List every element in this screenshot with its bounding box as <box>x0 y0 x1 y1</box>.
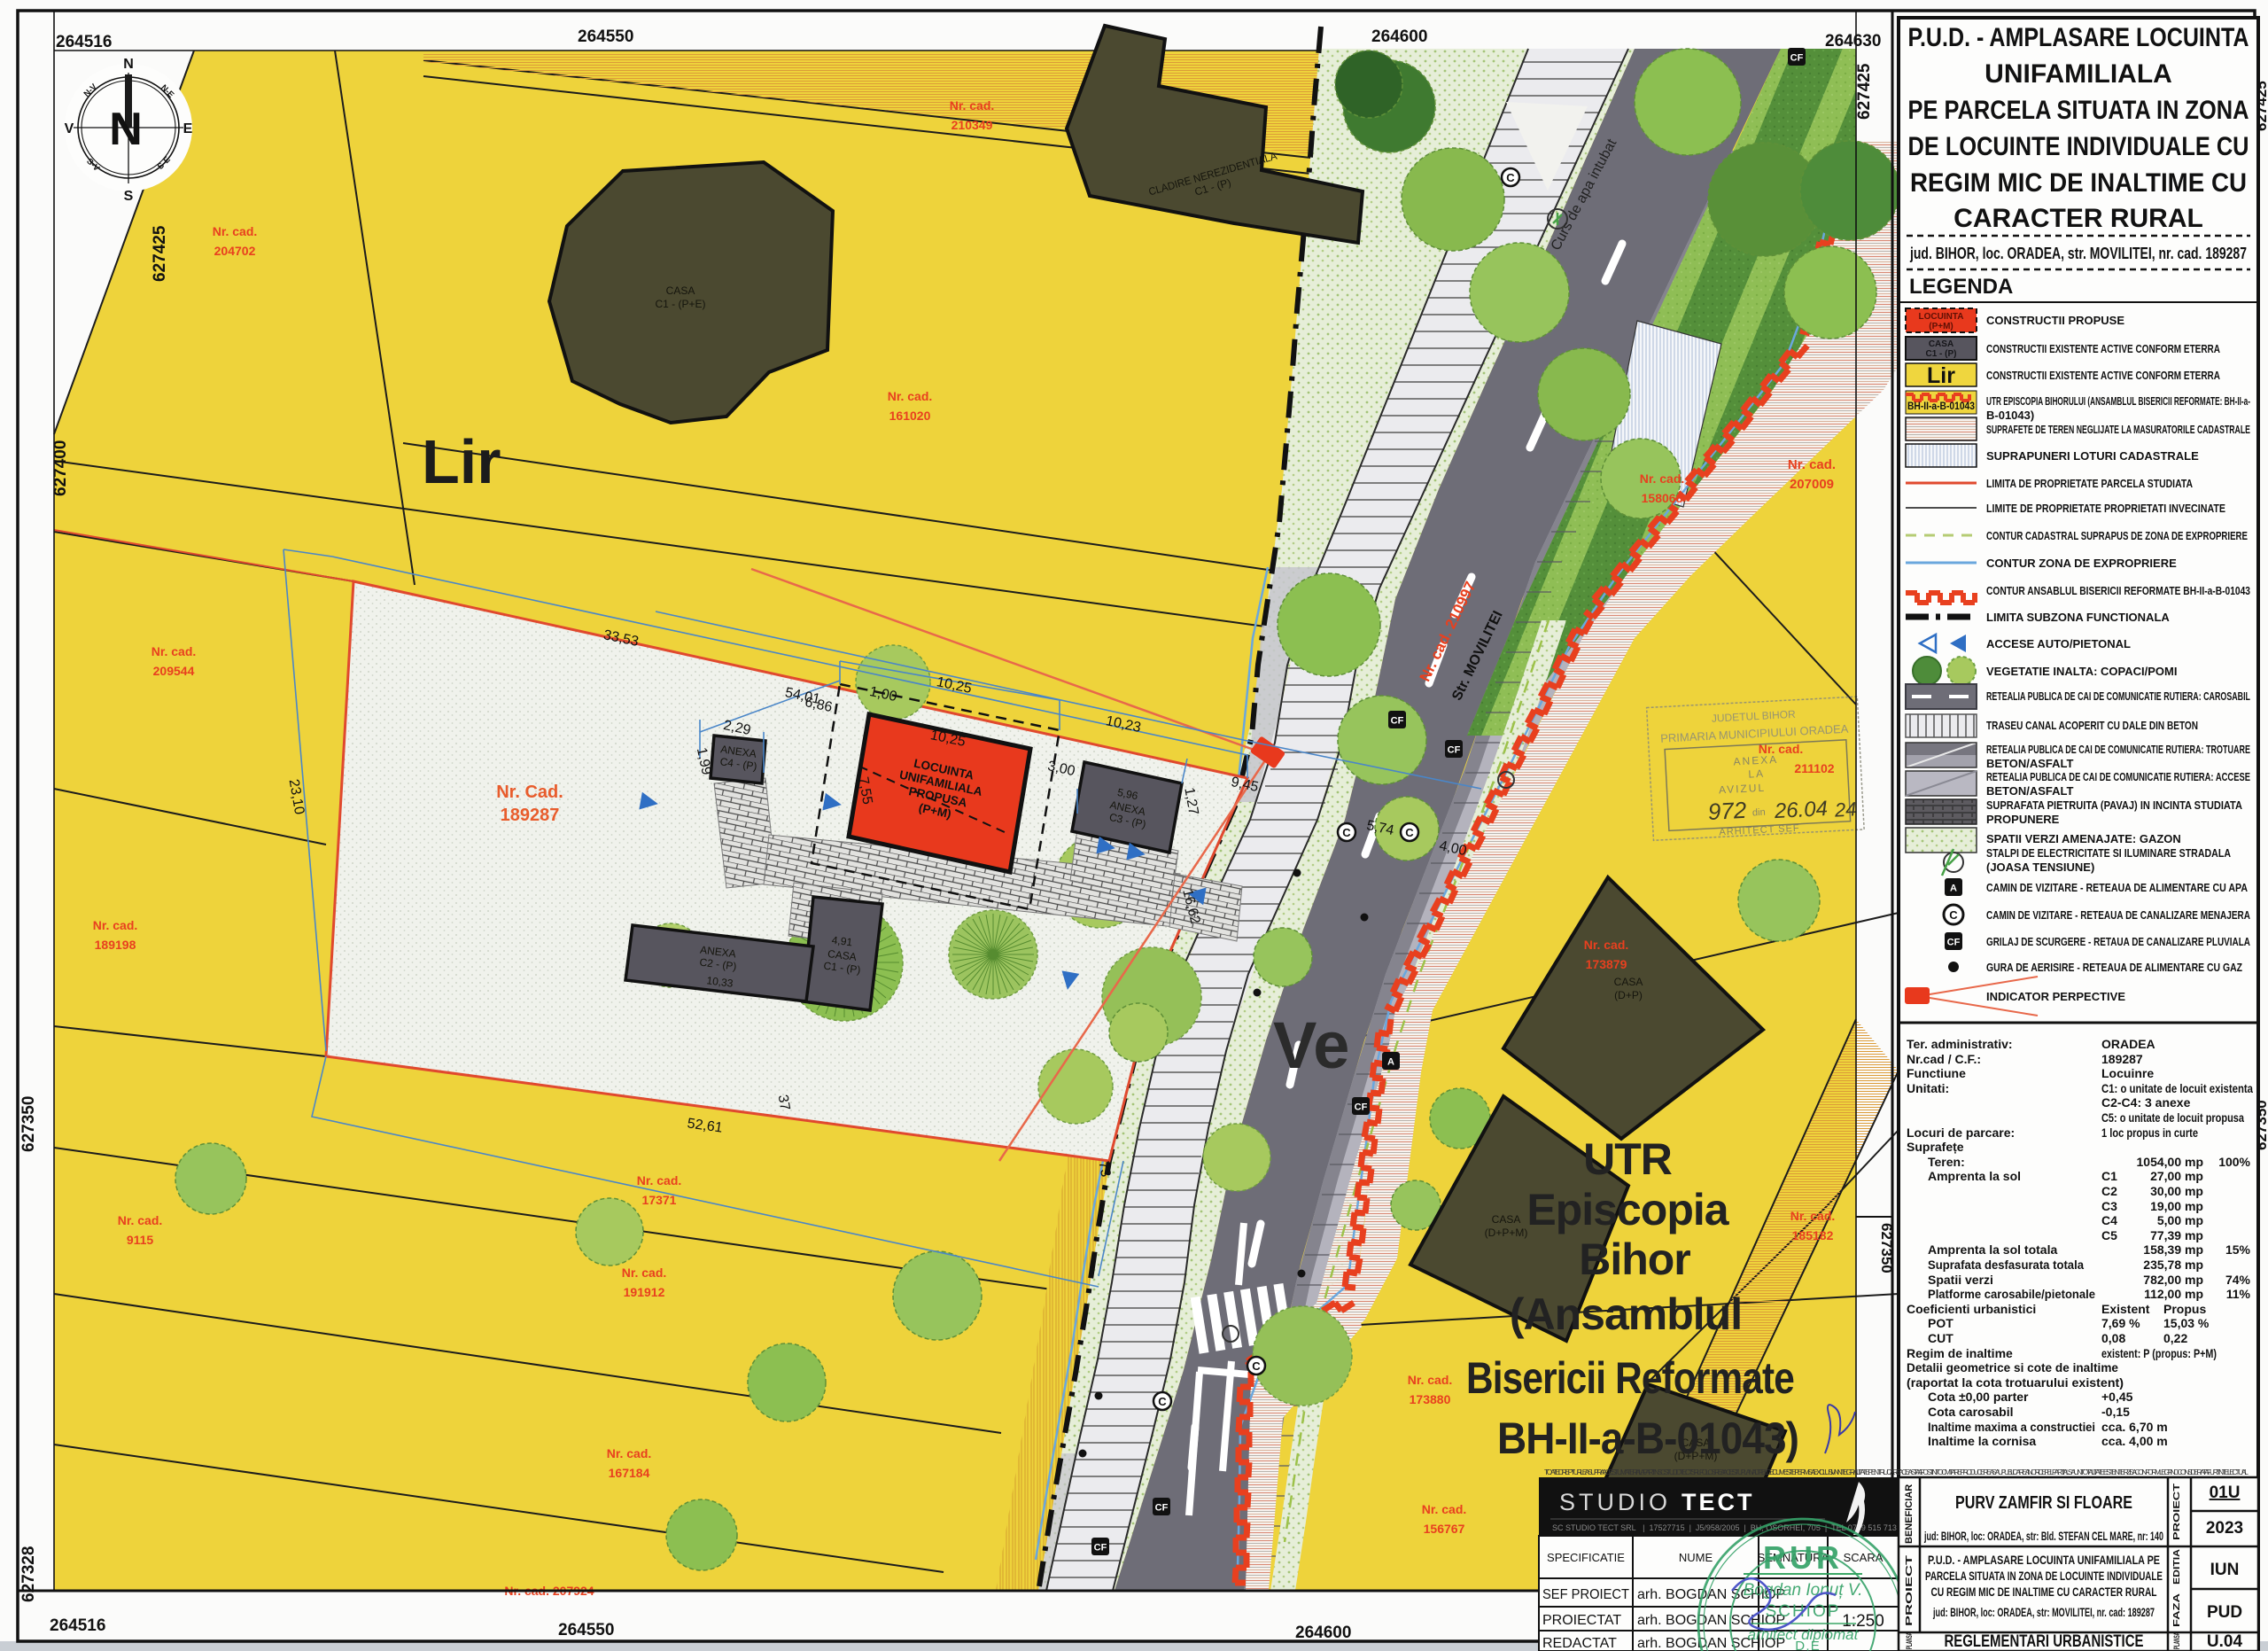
svg-text:C2-C4: 3 anexe: C2-C4: 3 anexe <box>2101 1095 2191 1110</box>
svg-text:627350: 627350 <box>19 1096 38 1152</box>
svg-text:Locuinre: Locuinre <box>2101 1066 2154 1080</box>
svg-text:19,00 mp: 19,00 mp <box>2150 1199 2203 1213</box>
svg-text:CUT: CUT <box>1928 1331 1953 1345</box>
svg-text:PROIECT: PROIECT <box>2172 1484 2182 1540</box>
svg-text:Nr. cad.: Nr. cad. <box>1584 938 1629 952</box>
svg-text:173880: 173880 <box>1410 1392 1451 1406</box>
svg-text:24: 24 <box>1833 798 1857 821</box>
svg-text:ACCESE AUTO/PIETONAL: ACCESE AUTO/PIETONAL <box>1986 637 2131 650</box>
svg-text:210349: 210349 <box>951 118 993 132</box>
svg-text:Bisericii Reformate: Bisericii Reformate <box>1466 1353 1794 1403</box>
svg-text:CAMIN DE VIZITARE - RETEAUA DE: CAMIN DE VIZITARE - RETEAUA DE CANALIZAR… <box>1986 908 2250 922</box>
svg-text:17371: 17371 <box>642 1193 677 1207</box>
svg-text:PLANSA: PLANSA <box>1905 1632 1914 1649</box>
svg-text:RUR: RUR <box>1763 1539 1843 1576</box>
svg-text:-0,15: -0,15 <box>2101 1405 2130 1419</box>
svg-text:Inaltime maxima a constructiei: Inaltime maxima a constructiei <box>1928 1420 2095 1434</box>
svg-text:jud. BIHOR, loc. ORADEA, str.: jud. BIHOR, loc. ORADEA, str. MOVILITEI,… <box>1909 244 2247 262</box>
svg-text:CONTUR ANSABLUL BISERICII REFO: CONTUR ANSABLUL BISERICII REFORMATE BH-I… <box>1986 584 2250 597</box>
svg-text:C5: C5 <box>2101 1228 2117 1242</box>
svg-text:Bogdan Ionuț V.: Bogdan Ionuț V. <box>1744 1581 1863 1600</box>
svg-text:(Ansamblul: (Ansamblul <box>1510 1289 1742 1339</box>
svg-text:Ve: Ve <box>1273 1009 1349 1082</box>
svg-text:0,08: 0,08 <box>2101 1331 2125 1345</box>
svg-text:235,78 mp: 235,78 mp <box>2143 1258 2203 1272</box>
svg-text:Nr. cad.: Nr. cad. <box>637 1173 682 1188</box>
svg-text:SUPRAPUNERI LOTURI CADASTRALE: SUPRAPUNERI LOTURI CADASTRALE <box>1986 449 2199 463</box>
svg-text:E: E <box>183 121 193 136</box>
svg-text:U.04: U.04 <box>2207 1632 2243 1651</box>
svg-text:CONTUR CADASTRAL SUPRAPUS DE Z: CONTUR CADASTRAL SUPRAPUS DE ZONA DE EXP… <box>1986 529 2248 542</box>
svg-text:Functiune: Functiune <box>1907 1066 1966 1080</box>
svg-text:264516: 264516 <box>56 33 112 51</box>
svg-text:C1: o unitate de locuit existe: C1: o unitate de locuit existenta <box>2101 1081 2253 1095</box>
svg-text:264600: 264600 <box>1371 27 1427 46</box>
svg-text:0,22: 0,22 <box>2163 1331 2187 1345</box>
svg-text:9115: 9115 <box>127 1233 154 1247</box>
svg-text:627328: 627328 <box>19 1546 38 1602</box>
svg-text:Cota ±0,00 parter: Cota ±0,00 parter <box>1928 1390 2029 1404</box>
svg-text:LIMITE DE PROPRIETATE PROPRIET: LIMITE DE PROPRIETATE PROPRIETATI INVECI… <box>1986 502 2225 515</box>
svg-text:SPECIFICATIE: SPECIFICATIE <box>1547 1551 1625 1564</box>
svg-text:1 loc propus in curte: 1 loc propus in curte <box>2101 1125 2198 1140</box>
svg-text:27,00 mp: 27,00 mp <box>2150 1169 2203 1183</box>
svg-text:Cota carosabil: Cota carosabil <box>1928 1405 2013 1419</box>
svg-text:PROPUNERE: PROPUNERE <box>1986 813 2060 826</box>
svg-text:V: V <box>65 121 74 136</box>
svg-text:RETEALIA PUBLICA DE CAI DE COM: RETEALIA PUBLICA DE CAI DE COMUNICATIE R… <box>1986 689 2250 703</box>
svg-text:264550: 264550 <box>578 27 633 46</box>
svg-text:C3: C3 <box>2101 1199 2117 1213</box>
svg-text:UTR: UTR <box>1583 1134 1673 1184</box>
svg-text:CASA: CASA <box>1492 1213 1521 1226</box>
svg-text:C: C <box>1342 826 1351 839</box>
svg-text:Nr. cad.: Nr. cad. <box>151 644 197 658</box>
svg-text:Nr. cad.: Nr. cad. <box>888 389 933 403</box>
svg-text:CF: CF <box>1094 1543 1107 1554</box>
svg-text:existent: P (propus: P+M): existent: P (propus: P+M) <box>2101 1346 2217 1360</box>
svg-text:PURV ZAMFIR SI FLOARE: PURV ZAMFIR SI FLOARE <box>1955 1493 2132 1513</box>
svg-text:73: 73 <box>1096 1160 1114 1179</box>
svg-text:161020: 161020 <box>889 409 931 423</box>
svg-text:TECT: TECT <box>1682 1489 1755 1515</box>
svg-text:din: din <box>1752 807 1766 819</box>
svg-text:C4: C4 <box>2101 1213 2117 1227</box>
svg-text:C: C <box>1405 826 1414 839</box>
svg-text:REDACTAT: REDACTAT <box>1542 1636 1617 1651</box>
svg-text:CF: CF <box>1947 938 1961 948</box>
svg-text:167184: 167184 <box>609 1466 650 1480</box>
svg-text:SUPRAFATA PIETRUITA (PAVAJ) IN: SUPRAFATA PIETRUITA (PAVAJ) IN INCINTA S… <box>1986 798 2243 812</box>
svg-text:CONTUR ZONA DE EXPROPRIERE: CONTUR ZONA DE EXPROPRIERE <box>1986 557 2177 570</box>
svg-text:4,91: 4,91 <box>831 934 853 949</box>
svg-text:LIMITA DE PROPRIETATE PARCELA: LIMITA DE PROPRIETATE PARCELA STUDIATA <box>1986 477 2193 490</box>
svg-text:2023: 2023 <box>2206 1519 2243 1538</box>
svg-text:Nr. cad.: Nr. cad. <box>213 224 258 238</box>
svg-text:EDITIA: EDITIA <box>2172 1549 2182 1585</box>
svg-text:A: A <box>1387 1057 1394 1068</box>
svg-text:ANEXA: ANEXA <box>1733 753 1778 768</box>
svg-text:782,00 mp: 782,00 mp <box>2143 1273 2203 1287</box>
svg-text:SEF PROIECT: SEF PROIECT <box>1542 1587 1629 1602</box>
svg-text:PLANSA: PLANSA <box>2172 1632 2181 1649</box>
svg-text:5,00 mp: 5,00 mp <box>2157 1213 2203 1227</box>
svg-text:IUN: IUN <box>2210 1561 2240 1579</box>
svg-text:204702: 204702 <box>214 244 256 258</box>
svg-text:77,39 mp: 77,39 mp <box>2150 1228 2203 1242</box>
svg-text:BETON/ASFALT: BETON/ASFALT <box>1986 784 2074 798</box>
svg-text:Detalii geometrice si cote de: Detalii geometrice si cote de inaltime <box>1907 1360 2118 1375</box>
svg-text:Regim de inaltime: Regim de inaltime <box>1907 1346 2013 1360</box>
svg-text:01U: 01U <box>2210 1484 2241 1502</box>
svg-text:158,39 mp: 158,39 mp <box>2143 1242 2203 1257</box>
svg-text:CONSTRUCTII EXISTENTE ACTIVE C: CONSTRUCTII EXISTENTE ACTIVE CONFORM ETE… <box>1986 342 2220 355</box>
svg-text:P.U.D. - AMPLASARE LOCUINTA UN: P.U.D. - AMPLASARE LOCUINTA UNIFAMILIALA… <box>1928 1553 2160 1567</box>
svg-text:Suprafețe: Suprafețe <box>1907 1140 1964 1154</box>
svg-text:CASA: CASA <box>666 284 695 297</box>
svg-text:TOATE DREPTURILE ASUPRA ACESTU: TOATE DREPTURILE ASUPRA ACESTUI MATERIAL… <box>1544 1468 2249 1476</box>
svg-text:GRILAJ DE SCURGERE - RETAUA DE: GRILAJ DE SCURGERE - RETAUA DE CANALIZAR… <box>1986 935 2250 948</box>
svg-text:264516: 264516 <box>50 1616 105 1635</box>
svg-text:74%: 74% <box>2225 1273 2251 1287</box>
svg-text:Lir: Lir <box>422 427 501 496</box>
svg-text:S: S <box>124 189 134 204</box>
svg-text:209544: 209544 <box>153 664 195 678</box>
svg-text:(D+P+M): (D+P+M) <box>1485 1227 1528 1239</box>
svg-text:SPATII VERZI AMENAJATE: GAZON: SPATII VERZI AMENAJATE: GAZON <box>1986 832 2181 845</box>
svg-text:cca. 4,00 m: cca. 4,00 m <box>2101 1434 2168 1448</box>
svg-text:GURA DE AERISIRE - RETEAUA DE: GURA DE AERISIRE - RETEAUA DE ALIMENTARE… <box>1986 961 2242 974</box>
svg-text:(P+M): (P+M) <box>1929 322 1953 331</box>
svg-text:ORADEA: ORADEA <box>2101 1037 2155 1051</box>
svg-text:627425: 627425 <box>1855 63 1874 120</box>
svg-text:C5: o unitate de locuit propus: C5: o unitate de locuit propusa <box>2101 1110 2244 1125</box>
svg-text:jud: BIHOR, loc: ORADEA, str:: jud: BIHOR, loc: ORADEA, str: Bld. STEFA… <box>1923 1530 2163 1543</box>
svg-text:(raportat la cota trotuarului: (raportat la cota trotuarului existent) <box>1907 1375 2124 1390</box>
svg-text:DE LOCUINTE INDIVIDUALE CU: DE LOCUINTE INDIVIDUALE CU <box>1908 132 2249 161</box>
svg-text:Nr. cad.: Nr. cad. <box>950 98 995 113</box>
svg-text:7,69 %: 7,69 % <box>2101 1316 2140 1330</box>
svg-text:Nr. cad.: Nr. cad. <box>118 1213 163 1227</box>
svg-text:15,03 %: 15,03 % <box>2163 1316 2210 1330</box>
svg-text:Locuri de parcare:: Locuri de parcare: <box>1907 1125 2015 1140</box>
svg-text:AVIZUL: AVIZUL <box>1719 782 1767 797</box>
svg-text:Nr. cad.: Nr. cad. <box>1790 1209 1836 1223</box>
svg-text:PE PARCELA SITUATA IN ZONA: PE PARCELA SITUATA IN ZONA <box>1908 96 2249 125</box>
svg-text:189287: 189287 <box>2101 1052 2143 1066</box>
svg-text:(JOASA TENSIUNE): (JOASA TENSIUNE) <box>1986 861 2094 874</box>
svg-text:Existent: Existent <box>2101 1302 2150 1316</box>
svg-text:jud: BIHOR, loc: ORADEA, str:: jud: BIHOR, loc: ORADEA, str: MOVILITEI,… <box>1932 1606 2155 1619</box>
svg-text:STUDIO: STUDIO <box>1559 1489 1671 1515</box>
svg-text:CARACTER RURAL: CARACTER RURAL <box>1953 204 2203 233</box>
svg-text:Nr. cad.: Nr. cad. <box>1640 471 1685 486</box>
svg-text:D , E: D , E <box>1795 1639 1820 1651</box>
svg-text:158068: 158068 <box>1642 491 1683 505</box>
svg-text:Teren:: Teren: <box>1928 1155 1965 1169</box>
svg-text:Nr. cad.: Nr. cad. <box>1408 1373 1453 1387</box>
svg-text:264600: 264600 <box>1295 1624 1351 1642</box>
svg-text:Spatii verzi: Spatii verzi <box>1928 1273 1993 1287</box>
svg-text:C: C <box>1158 1395 1167 1408</box>
svg-text:627400: 627400 <box>51 440 70 496</box>
svg-text:VEGETATIE INALTA: COPACI/POMI: VEGETATIE INALTA: COPACI/POMI <box>1986 665 2177 678</box>
svg-text:Lir: Lir <box>1927 363 1955 388</box>
svg-text:PUD: PUD <box>2207 1603 2242 1622</box>
svg-text:Nr. cad.: Nr. cad. <box>622 1266 667 1280</box>
svg-text:LA: LA <box>1748 767 1765 781</box>
svg-text:CF: CF <box>1155 1503 1169 1514</box>
svg-text:Episcopia: Episcopia <box>1526 1185 1729 1234</box>
svg-text:C2: C2 <box>2101 1184 2117 1198</box>
svg-text:CASA: CASA <box>1614 976 1643 988</box>
svg-text:C: C <box>1252 1359 1261 1373</box>
svg-text:SUPRAFETE DE TEREN NEGLIJATE L: SUPRAFETE DE TEREN NEGLIJATE LA MASURATO… <box>1986 423 2250 436</box>
svg-text:CF: CF <box>1448 745 1461 756</box>
svg-text:Amprenta la sol totala: Amprenta la sol totala <box>1928 1242 2057 1257</box>
svg-text:11%: 11% <box>2226 1287 2251 1301</box>
svg-text:STALPI DE ELECTRICITATE SI ILU: STALPI DE ELECTRICITATE SI ILUMINARE STR… <box>1986 846 2231 860</box>
svg-text:POT: POT <box>1928 1316 1953 1330</box>
svg-text:B-01043): B-01043) <box>1986 409 2034 422</box>
svg-text:RETEALIA PUBLICA DE CAI DE COM: RETEALIA PUBLICA DE CAI DE COMUNICATIE R… <box>1986 770 2250 783</box>
svg-text:PROIECT: PROIECT <box>1905 1555 1915 1626</box>
svg-text:CONSTRUCTII PROPUSE: CONSTRUCTII PROPUSE <box>1986 314 2124 327</box>
svg-text:Nr. cad.: Nr. cad. <box>93 918 138 932</box>
svg-text:Bihor: Bihor <box>1579 1234 1690 1284</box>
svg-text:15%: 15% <box>2225 1242 2251 1257</box>
svg-text:189287: 189287 <box>501 806 560 825</box>
svg-text:189198: 189198 <box>95 938 136 952</box>
svg-text:LEGENDA: LEGENDA <box>1909 275 2013 299</box>
svg-text:P.U.D. - AMPLASARE LOCUINTA: P.U.D. - AMPLASARE LOCUINTA <box>1908 23 2249 52</box>
svg-text:Coeficienti urbanistici: Coeficienti urbanistici <box>1907 1302 2036 1316</box>
svg-text:C: C <box>1949 908 1958 922</box>
svg-text:185182: 185182 <box>1792 1228 1834 1242</box>
svg-text:Nr. Cad.: Nr. Cad. <box>496 783 563 802</box>
svg-text:REGIM MIC DE INALTIME CU: REGIM MIC DE INALTIME CU <box>1910 168 2247 198</box>
svg-text:C1 - (P+E): C1 - (P+E) <box>655 298 705 310</box>
svg-text:REGLEMENTARI URBANISTICE: REGLEMENTARI URBANISTICE <box>1945 1632 2144 1651</box>
svg-text:173879: 173879 <box>1586 957 1627 971</box>
svg-text:Suprafata desfasurata totala: Suprafata desfasurata totala <box>1928 1258 2084 1272</box>
svg-text:BENEFICIAR: BENEFICIAR <box>1904 1484 1915 1544</box>
svg-text:C: C <box>1506 171 1515 184</box>
svg-text:Platforme carosabile/pietonale: Platforme carosabile/pietonale <box>1928 1287 2095 1301</box>
svg-text:37: 37 <box>775 1094 793 1112</box>
svg-text:FAZA: FAZA <box>2172 1593 2182 1627</box>
svg-text:+0,45: +0,45 <box>2101 1390 2133 1404</box>
svg-text:INDICATOR PERPECTIVE: INDICATOR PERPECTIVE <box>1986 990 2125 1003</box>
svg-text:Amprenta la sol: Amprenta la sol <box>1928 1169 2021 1183</box>
svg-text:191912: 191912 <box>624 1285 665 1299</box>
svg-text:PARCELA SITUATA IN ZONA DE LOC: PARCELA SITUATA IN ZONA DE LOCUINTE INDI… <box>1925 1569 2163 1583</box>
svg-text:627350: 627350 <box>1878 1223 1895 1273</box>
svg-text:CF: CF <box>1391 716 1404 727</box>
svg-text:1054,00 mp: 1054,00 mp <box>2137 1155 2204 1169</box>
svg-text:Nr. cad.: Nr. cad. <box>607 1446 652 1460</box>
svg-text:156767: 156767 <box>1424 1522 1465 1536</box>
svg-text:Propus: Propus <box>2163 1302 2206 1316</box>
svg-text:LIMITA SUBZONA FUNCTIONALA: LIMITA SUBZONA FUNCTIONALA <box>1986 611 2170 624</box>
svg-text:Nr. cad.: Nr. cad. <box>1788 457 1836 472</box>
svg-text:Inaltime la cornisa: Inaltime la cornisa <box>1928 1434 2036 1448</box>
svg-text:627425: 627425 <box>151 225 169 282</box>
svg-text:CF: CF <box>1355 1102 1368 1113</box>
svg-text:100%: 100% <box>2218 1155 2250 1169</box>
svg-text:264550: 264550 <box>558 1621 614 1639</box>
svg-text:264630: 264630 <box>1825 32 1881 51</box>
svg-text:PROIECTAT: PROIECTAT <box>1542 1613 1621 1628</box>
svg-text:207009: 207009 <box>1790 477 1834 492</box>
svg-text:Nr.cad / C.F.:: Nr.cad / C.F.: <box>1907 1052 1981 1066</box>
svg-text:Nr. cad.: Nr. cad. <box>1422 1502 1467 1516</box>
svg-text:RETEALIA PUBLICA DE CAI DE COM: RETEALIA PUBLICA DE CAI DE COMUNICATIE R… <box>1986 743 2250 756</box>
svg-text:CU REGIM MIC DE INALTIME CU CA: CU REGIM MIC DE INALTIME CU CARACTER RUR… <box>1931 1585 2157 1599</box>
svg-text:C1 - (P): C1 - (P) <box>1926 349 1957 359</box>
svg-text:112,00 mp: 112,00 mp <box>2144 1287 2203 1301</box>
svg-text:CF: CF <box>1790 53 1804 64</box>
svg-text:26.04: 26.04 <box>1773 797 1828 823</box>
svg-text:UTR EPISCOPIA BIHORULUI (ANSAM: UTR EPISCOPIA BIHORULUI (ANSAMBLUL BISER… <box>1986 394 2250 408</box>
svg-text:N: N <box>123 57 134 72</box>
svg-text:Unitati:: Unitati: <box>1907 1081 1949 1095</box>
svg-text:CONSTRUCTII EXISTENTE ACTIVE C: CONSTRUCTII EXISTENTE ACTIVE CONFORM ETE… <box>1986 369 2220 382</box>
svg-text:LOCUINTA: LOCUINTA <box>1919 312 1964 322</box>
svg-text:A: A <box>1950 884 1957 894</box>
svg-text:CASA: CASA <box>1929 339 1953 349</box>
svg-text:UNIFAMILIALA: UNIFAMILIALA <box>1984 59 2172 89</box>
svg-text:30,00 mp: 30,00 mp <box>2150 1184 2203 1198</box>
svg-text:(D+P): (D+P) <box>1614 989 1643 1001</box>
svg-text:972: 972 <box>1707 797 1747 825</box>
svg-text:211102: 211102 <box>1794 761 1834 775</box>
svg-text:BH-II-a-B-01043): BH-II-a-B-01043) <box>1497 1413 1798 1463</box>
svg-text:TRASEU CANAL ACOPERIT CU DALE: TRASEU CANAL ACOPERIT CU DALE DIN BETON <box>1986 719 2198 732</box>
svg-text:CAMIN DE VIZITARE - RETEAUA DE: CAMIN DE VIZITARE - RETEAUA DE ALIMENTAR… <box>1986 881 2248 894</box>
svg-text:Ter. administrativ:: Ter. administrativ: <box>1907 1037 2013 1051</box>
svg-text:cca. 6,70 m: cca. 6,70 m <box>2101 1420 2168 1434</box>
svg-text:C1: C1 <box>2101 1169 2117 1183</box>
svg-text:BETON/ASFALT: BETON/ASFALT <box>1986 757 2074 770</box>
svg-text:N: N <box>109 104 143 155</box>
svg-text:NUME: NUME <box>1679 1551 1713 1564</box>
svg-text:BH-II-a-B-01043: BH-II-a-B-01043 <box>1907 400 1975 412</box>
